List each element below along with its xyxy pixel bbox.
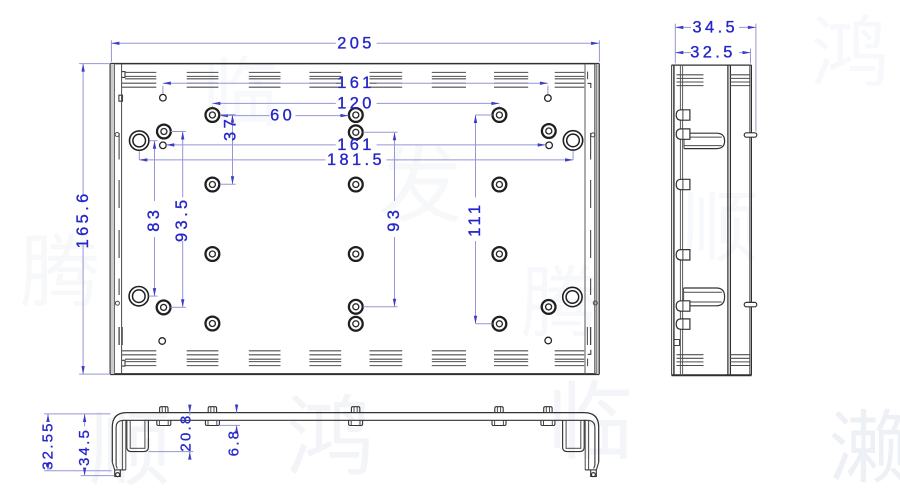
svg-text:37: 37 (222, 116, 240, 141)
svg-text:32.5: 32.5 (690, 44, 736, 62)
svg-text:111: 111 (466, 202, 484, 237)
svg-text:165.6: 165.6 (74, 190, 92, 248)
svg-text:181.5: 181.5 (327, 151, 385, 169)
svg-text:60: 60 (270, 107, 295, 125)
svg-text:6.8: 6.8 (226, 429, 243, 456)
svg-text:34.5: 34.5 (76, 428, 93, 466)
svg-text:20.8: 20.8 (177, 414, 194, 452)
svg-text:83: 83 (145, 207, 163, 232)
svg-text:32.55: 32.55 (40, 421, 57, 470)
svg-text:临: 临 (547, 375, 633, 471)
svg-text:鸿: 鸿 (811, 9, 889, 97)
svg-text:鸿: 鸿 (286, 388, 374, 487)
svg-text:205: 205 (337, 34, 375, 52)
svg-text:34.5: 34.5 (693, 18, 739, 36)
svg-text:濑: 濑 (828, 404, 900, 493)
svg-text:顺: 顺 (681, 184, 759, 272)
svg-text:顺: 顺 (89, 405, 171, 496)
svg-text:93.5: 93.5 (173, 196, 191, 242)
svg-text:120: 120 (337, 94, 375, 112)
svg-text:临: 临 (202, 52, 278, 137)
svg-text:93: 93 (385, 207, 403, 232)
svg-text:161: 161 (337, 74, 375, 92)
